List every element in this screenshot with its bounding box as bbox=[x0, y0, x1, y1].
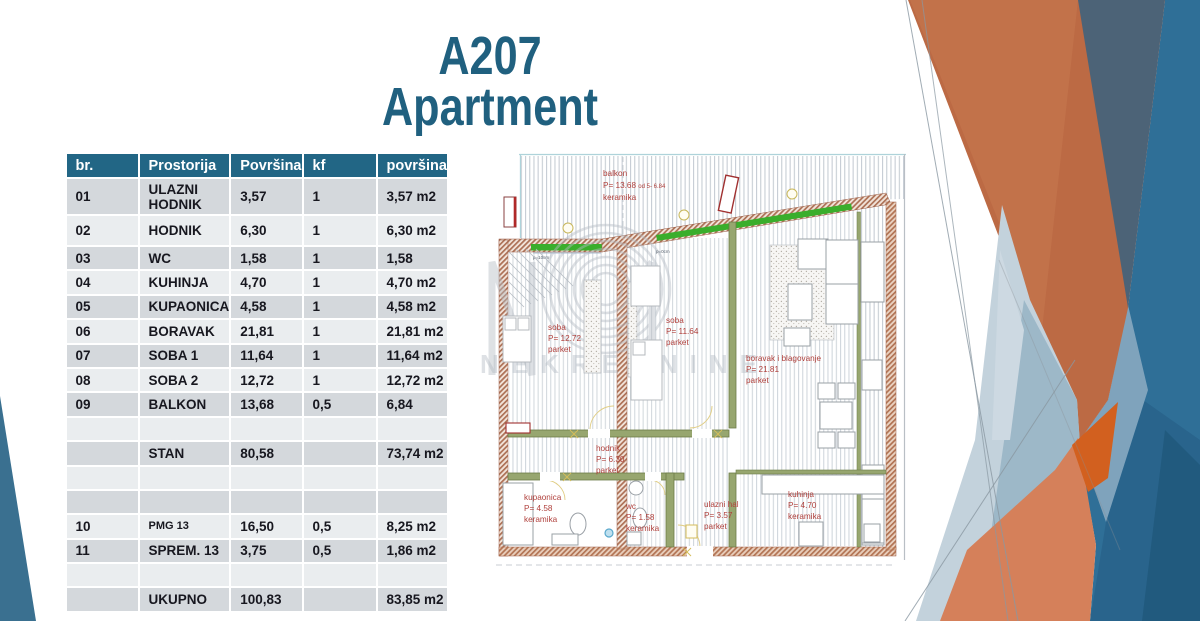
svg-text:keramika: keramika bbox=[524, 515, 558, 524]
svg-text:wc: wc bbox=[625, 502, 636, 511]
svg-text:P= 1.58: P= 1.58 bbox=[626, 513, 655, 522]
svg-text:P= 12.72: P= 12.72 bbox=[548, 334, 581, 343]
svg-text:soba: soba bbox=[666, 316, 684, 325]
svg-text:p=0cm: p=0cm bbox=[656, 249, 670, 254]
svg-text:balkon: balkon bbox=[603, 169, 628, 178]
svg-text:p=10cm: p=10cm bbox=[533, 255, 549, 260]
svg-text:P= 4.70: P= 4.70 bbox=[788, 501, 817, 510]
svg-text:P= 4.58: P= 4.58 bbox=[524, 504, 553, 513]
svg-text:P= 6.30: P= 6.30 bbox=[596, 455, 625, 464]
svg-text:parket: parket bbox=[746, 376, 769, 385]
svg-text:boravak i blagovanje: boravak i blagovanje bbox=[746, 354, 822, 363]
svg-text:hodnik: hodnik bbox=[596, 444, 621, 453]
svg-text:ulazni hal: ulazni hal bbox=[704, 500, 739, 509]
svg-text:kupaonica: kupaonica bbox=[524, 493, 562, 502]
svg-text:keramika: keramika bbox=[788, 512, 822, 521]
svg-text:soba: soba bbox=[548, 323, 566, 332]
svg-text:keramika: keramika bbox=[626, 524, 660, 533]
svg-text:P= 3.57: P= 3.57 bbox=[704, 511, 733, 520]
svg-text:P= 21.81: P= 21.81 bbox=[746, 365, 779, 374]
svg-text:parket: parket bbox=[548, 345, 571, 354]
svg-text:kuhinja: kuhinja bbox=[788, 490, 814, 499]
svg-text:keramika: keramika bbox=[603, 193, 637, 202]
svg-text:parket: parket bbox=[704, 522, 727, 531]
svg-text:parket: parket bbox=[596, 466, 619, 475]
svg-text:parket: parket bbox=[666, 338, 689, 347]
svg-text:P= 11.64: P= 11.64 bbox=[666, 327, 699, 336]
